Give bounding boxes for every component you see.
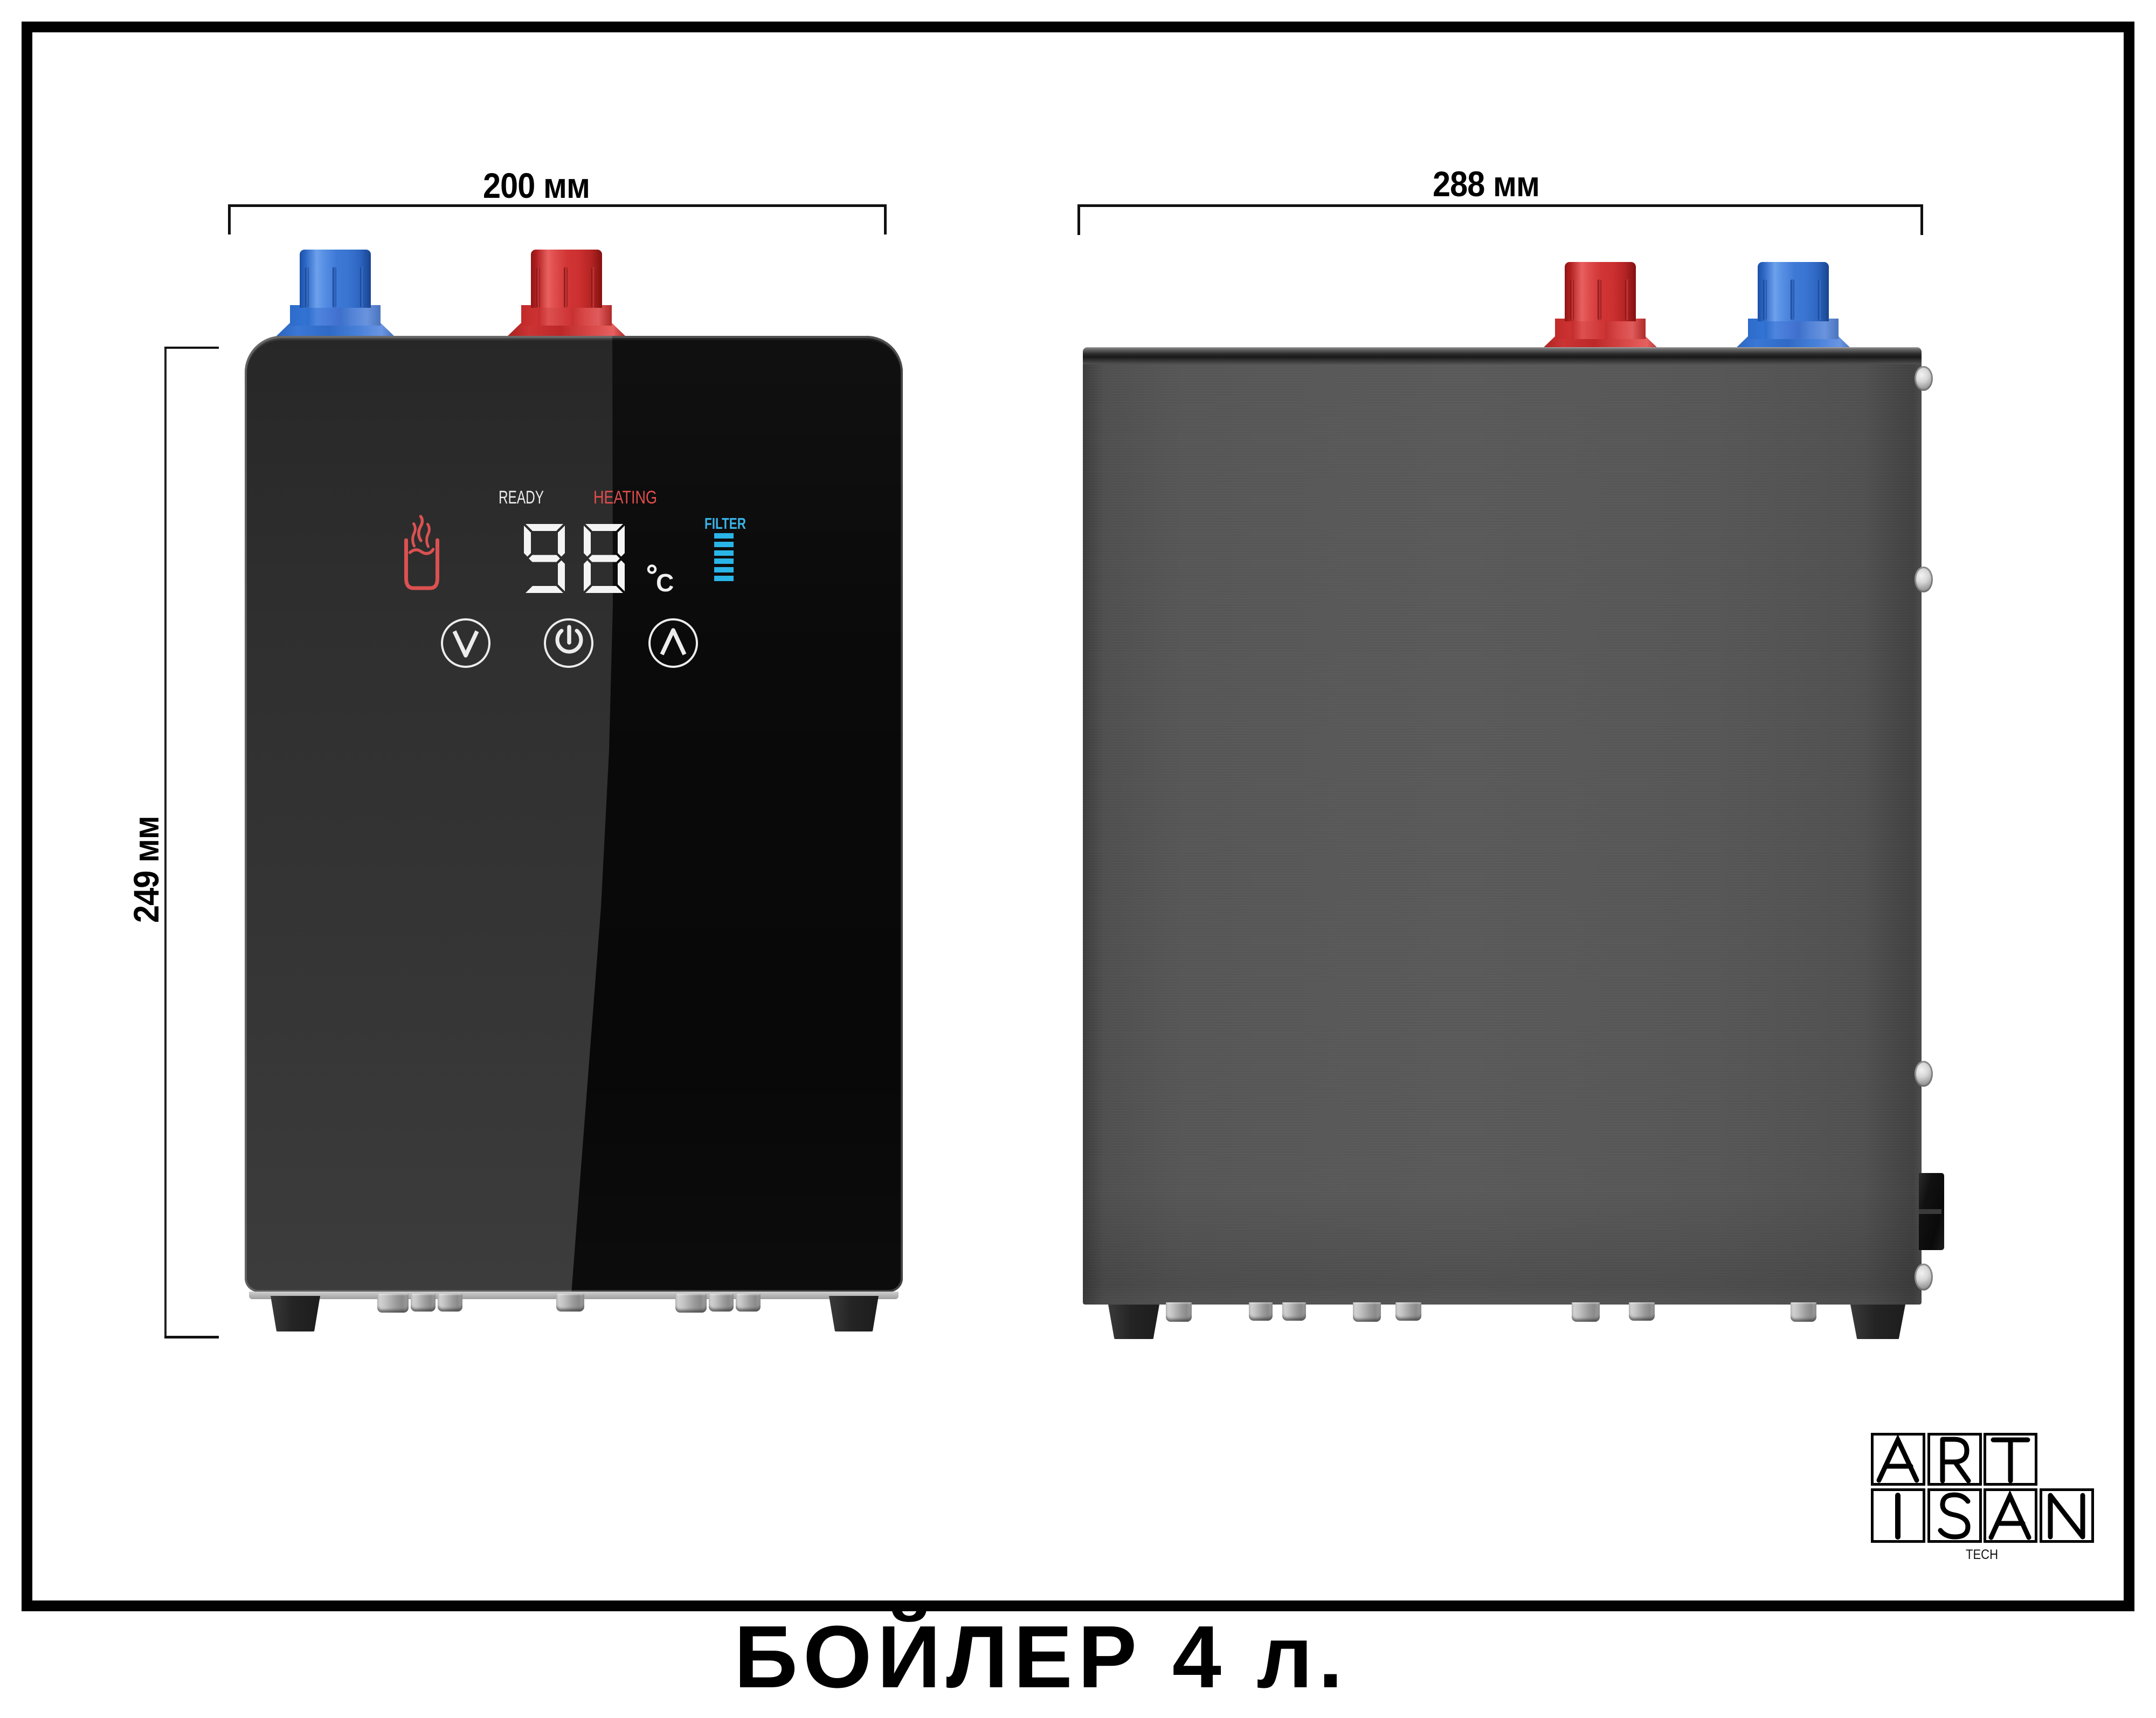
svg-text:HEATING: HEATING <box>593 487 657 508</box>
svg-text:READY: READY <box>499 487 544 508</box>
svg-text:FILTER: FILTER <box>704 515 746 533</box>
svg-text:TECH: TECH <box>1966 1547 1998 1562</box>
svg-text:C: C <box>656 569 674 597</box>
